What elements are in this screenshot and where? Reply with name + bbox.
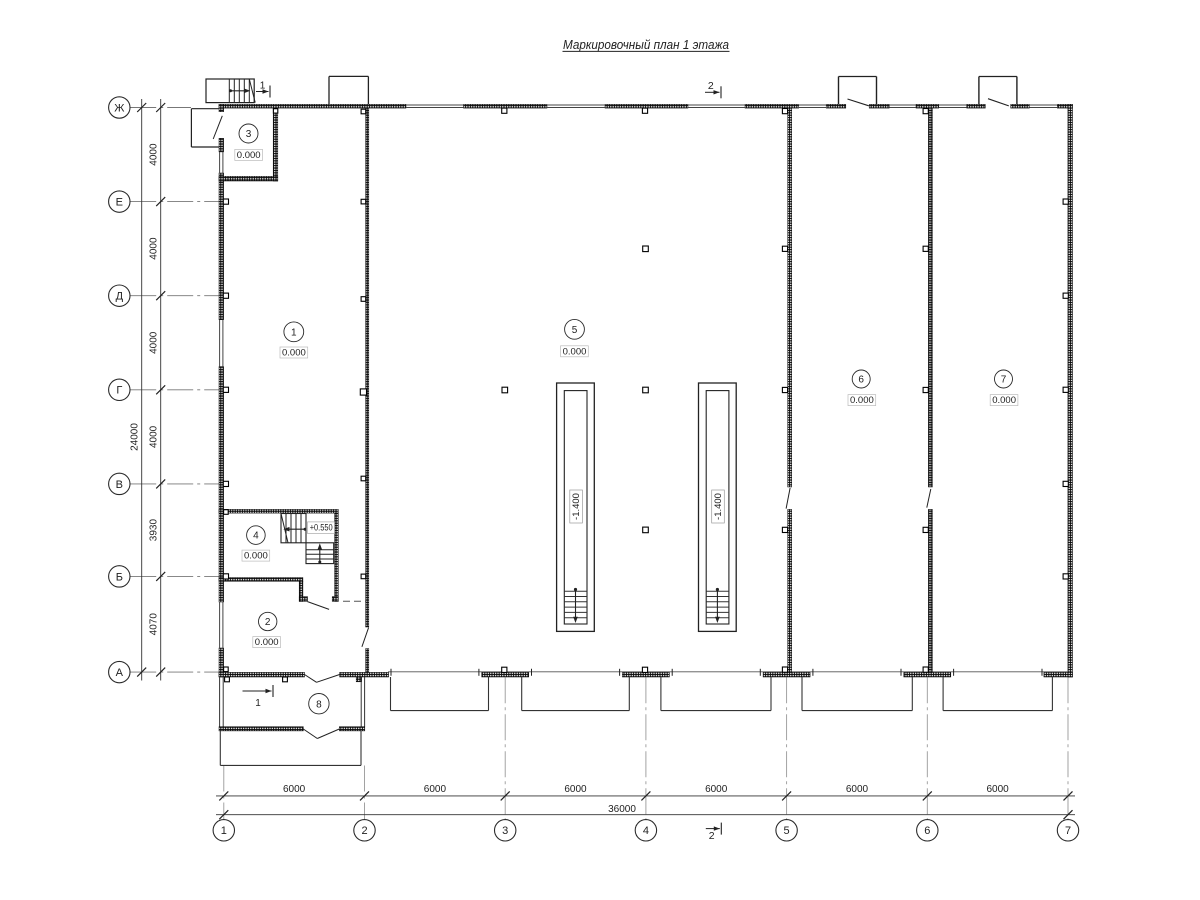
svg-text:2: 2 [709,830,715,842]
svg-text:2: 2 [265,617,271,628]
svg-text:8: 8 [316,699,322,710]
svg-text:2: 2 [361,825,367,837]
svg-text:3: 3 [246,129,252,140]
svg-text:0.000: 0.000 [850,395,874,406]
svg-text:6000: 6000 [705,784,728,795]
svg-text:3930: 3930 [149,519,160,542]
svg-text:3: 3 [502,825,508,837]
svg-text:0.000: 0.000 [563,346,587,357]
svg-text:4000: 4000 [149,331,160,354]
svg-text:36000: 36000 [608,804,636,815]
svg-text:Е: Е [116,197,123,209]
svg-text:6000: 6000 [283,784,306,795]
svg-text:6000: 6000 [424,784,447,795]
svg-text:-1.400: -1.400 [713,493,724,520]
svg-text:Маркировочный план 1 этажа: Маркировочный план 1 этажа [563,38,729,52]
svg-text:Г: Г [116,385,122,397]
svg-text:6000: 6000 [986,784,1009,795]
svg-text:В: В [116,479,123,491]
svg-text:Ж: Ж [114,102,124,114]
svg-text:1: 1 [255,698,261,709]
svg-text:-1.400: -1.400 [571,493,582,520]
svg-text:1: 1 [291,327,297,338]
svg-text:5: 5 [784,825,790,837]
svg-text:0.000: 0.000 [237,150,261,161]
svg-text:А: А [116,667,124,679]
svg-text:2: 2 [708,80,714,92]
svg-text:6: 6 [924,825,930,837]
svg-text:5: 5 [572,325,578,336]
svg-text:0.000: 0.000 [244,551,268,562]
svg-text:4: 4 [253,531,259,542]
svg-text:24000: 24000 [130,423,141,451]
svg-text:0.000: 0.000 [282,348,306,359]
svg-text:7: 7 [1065,825,1071,837]
svg-text:7: 7 [1001,375,1007,386]
svg-text:6000: 6000 [564,784,587,795]
svg-text:4000: 4000 [149,425,160,448]
svg-text:0.000: 0.000 [992,395,1016,406]
svg-text:4070: 4070 [149,613,160,636]
svg-text:6000: 6000 [846,784,869,795]
svg-text:4000: 4000 [149,237,160,260]
svg-text:+0.550: +0.550 [310,522,333,532]
svg-text:Б: Б [116,571,123,583]
svg-text:Д: Д [116,291,124,303]
svg-text:6: 6 [858,375,864,386]
svg-text:0.000: 0.000 [255,637,279,648]
svg-text:1: 1 [221,825,227,837]
svg-text:4: 4 [643,825,649,837]
svg-text:4000: 4000 [149,143,160,166]
